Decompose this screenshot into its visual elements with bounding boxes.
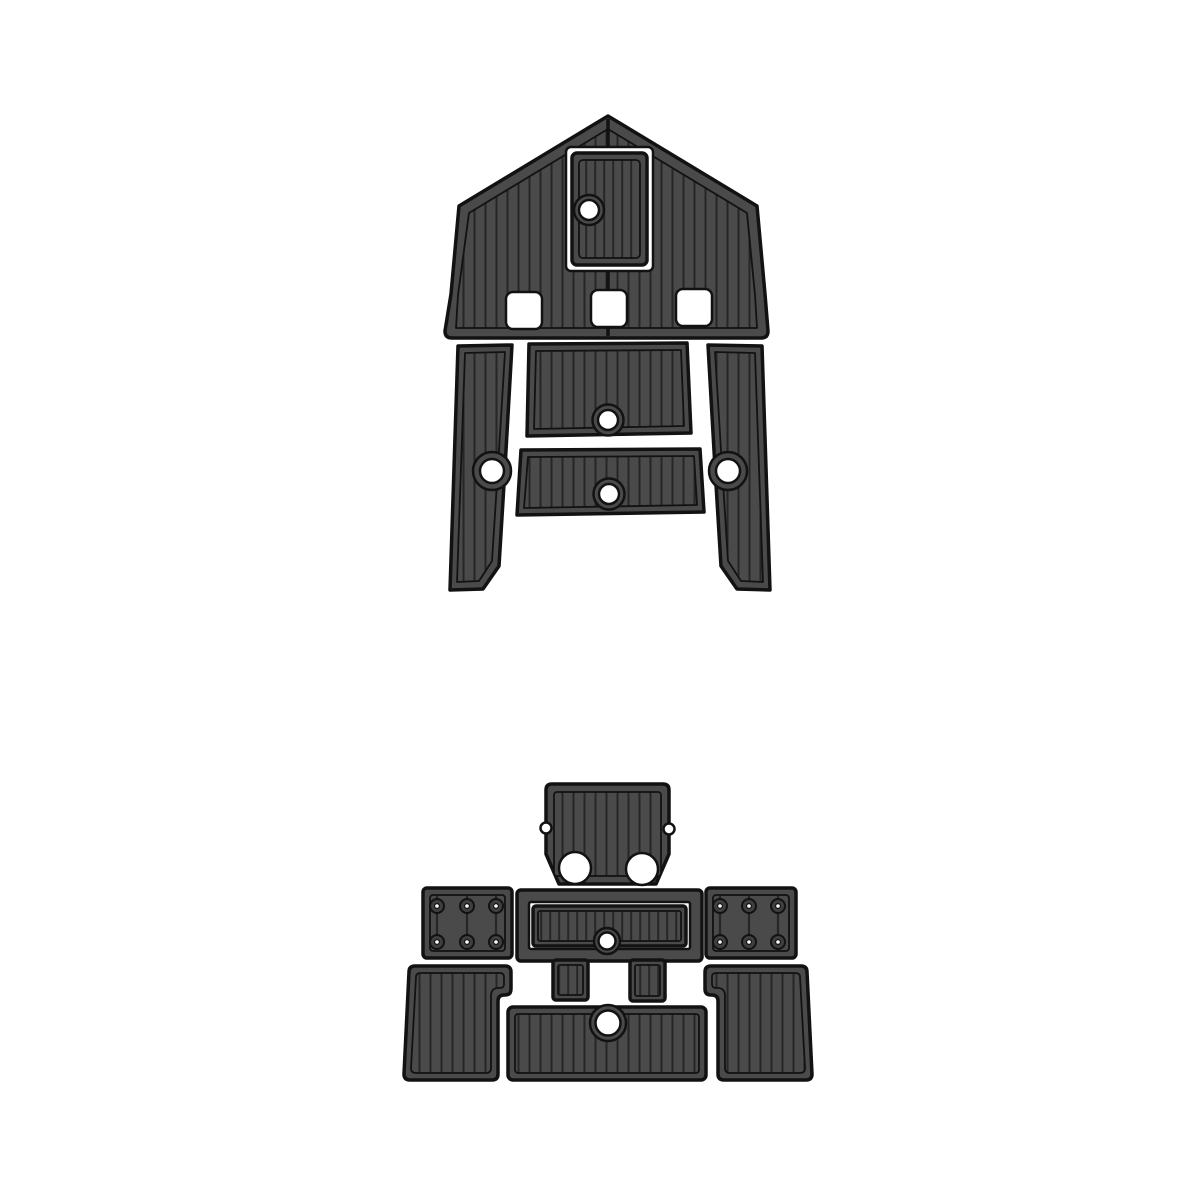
starboard-bolt-pad (706, 888, 796, 958)
step-pad-right-plank-field (635, 965, 660, 996)
bolt-hole-center (494, 904, 499, 909)
bow-pad (445, 116, 768, 338)
transom-pad (541, 784, 675, 885)
lower-assembly (404, 784, 812, 1080)
bow-hatch-insert-pad (572, 153, 647, 265)
deck-pad-diagram (0, 0, 1200, 1200)
bow-square-cutout-left (506, 292, 542, 329)
step-pad-left (553, 960, 588, 1000)
bolt-hole-center (465, 904, 470, 909)
starboard-floor-plank-field (712, 973, 805, 1073)
hatch-insert-keyhole (599, 933, 616, 950)
bow-square-cutout-center (591, 290, 627, 327)
bolt-hole-center (747, 904, 752, 909)
aft-floor-keyhole (596, 1011, 621, 1036)
bolt-hole-center (718, 940, 723, 945)
transom-round-cutout-left (559, 852, 591, 884)
port-side-runner-pad (450, 345, 512, 590)
transom-side-notch-left (541, 823, 552, 834)
bolt-hole-center (776, 940, 781, 945)
hatch-finger-hole (579, 200, 599, 220)
bolt-hole-center (435, 904, 440, 909)
step-pad-left-plank-field (558, 965, 583, 995)
port-floor-pad (404, 966, 511, 1080)
transom-side-notch-right (664, 824, 675, 835)
mid-deck-pad-upper (527, 343, 691, 436)
bolt-hole-center (435, 940, 440, 945)
framed-hatch-pad (517, 890, 702, 961)
port-runner-keyhole (480, 459, 504, 483)
aft-floor-pad (508, 1005, 706, 1080)
transom-round-cutout-right (626, 853, 658, 885)
port-bolt-pad (423, 888, 512, 958)
upper-assembly (445, 116, 770, 590)
bolt-hole-center (465, 940, 470, 945)
product-image-canvas (0, 0, 1200, 1200)
mid-deck-pad-lower (517, 449, 704, 515)
starboard-side-runner-pad (708, 345, 770, 590)
bolt-hole-center (718, 904, 723, 909)
mid-lower-keyhole (599, 484, 619, 504)
bolt-hole-center (494, 940, 499, 945)
bolt-hole-center (776, 904, 781, 909)
starboard-floor-pad (705, 966, 812, 1080)
bolt-hole-center (747, 940, 752, 945)
mid-upper-keyhole (598, 410, 618, 430)
step-pad-right (630, 960, 665, 1001)
starboard-runner-keyhole (716, 459, 740, 483)
bow-square-cutout-right (676, 289, 712, 326)
port-floor-plank-field (411, 973, 504, 1073)
